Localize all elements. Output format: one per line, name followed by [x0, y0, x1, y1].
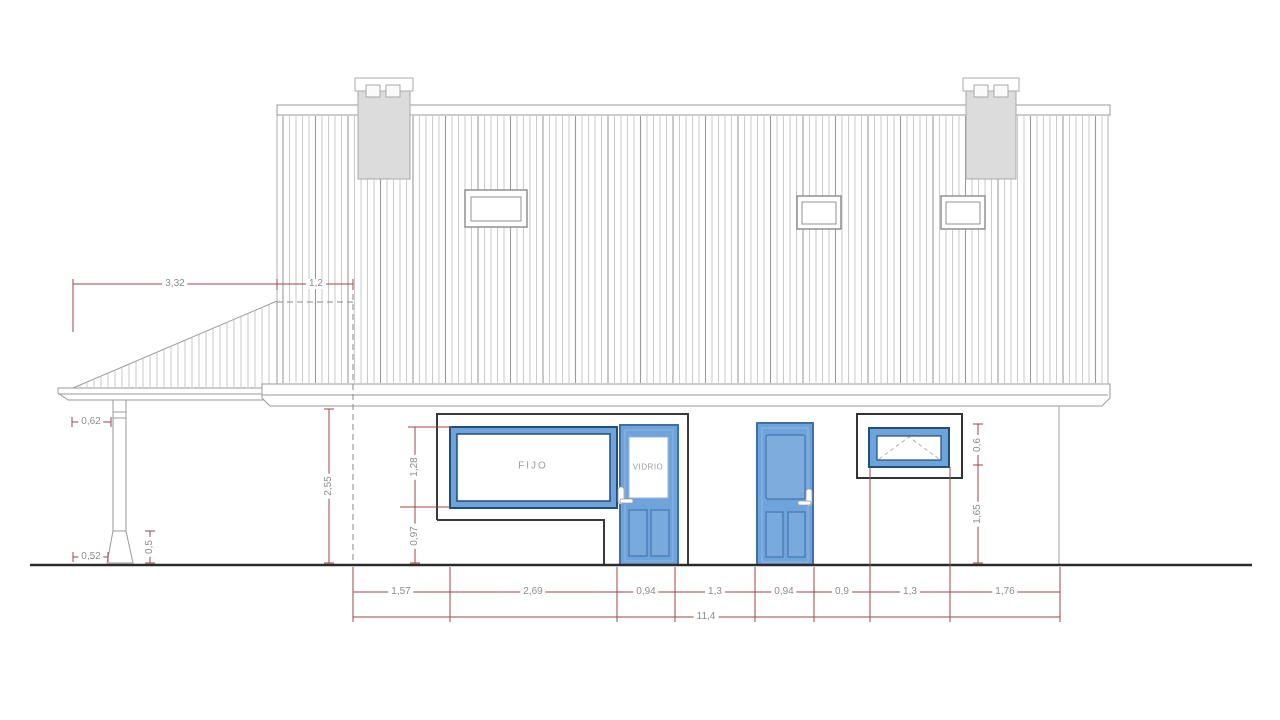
fixed-window-label: FIJO — [518, 461, 548, 472]
dim-bottom-4: 1,3 — [705, 587, 725, 597]
dim-eave-to-post: 0,62 — [78, 417, 103, 427]
chimney-right — [963, 78, 1019, 179]
dim-awning-height: 0,6 — [973, 435, 983, 455]
chimney-right-cap — [963, 78, 1019, 91]
dim-bottom-6: 0,9 — [832, 587, 852, 597]
awning-window — [869, 428, 949, 467]
glazed-door — [618, 425, 678, 565]
door-panel-top — [766, 435, 805, 499]
chimney-left-vent-1 — [366, 85, 380, 97]
elevation-drawing-canvas: FIJO VIDRIO 3,32 1,2 0,62 0,52 0,5 2,55 … — [0, 0, 1280, 720]
dim-post-base-height: 0,5 — [145, 537, 155, 557]
dim-roof-offset: 1,2 — [306, 279, 326, 289]
glazed-door-label: VIDRIO — [633, 463, 664, 472]
dim-awning-sill: 1,65 — [973, 501, 983, 526]
dim-wall-height: 2,55 — [324, 473, 334, 498]
chimney-left — [355, 78, 413, 179]
dim-window-sill: 0,97 — [410, 523, 420, 548]
dim-bottom-5: 0,94 — [771, 587, 796, 597]
door-panel-bottom-right — [788, 512, 805, 557]
dim-bottom-3: 0,94 — [633, 587, 658, 597]
chimney-right-vent-1 — [974, 85, 988, 97]
chimney-left-cap — [355, 78, 413, 91]
elevation-linework — [0, 0, 1280, 720]
roof-window-left — [465, 190, 527, 227]
panel-door — [757, 423, 813, 565]
dim-bottom-7: 1,3 — [900, 587, 920, 597]
roof-window-right — [941, 196, 985, 229]
dim-bottom-1: 1,57 — [388, 587, 413, 597]
door-panel-right — [651, 510, 669, 556]
dim-bottom-8: 1,76 — [992, 587, 1017, 597]
roof-window-middle — [797, 196, 841, 229]
door-panel-left — [629, 510, 647, 556]
dim-window-height: 1,28 — [410, 454, 420, 479]
porch-post-base — [107, 531, 133, 563]
dim-post-base-offset: 0,52 — [78, 552, 103, 562]
dim-leanto-width: 3,32 — [162, 279, 187, 289]
chimney-right-vent-2 — [994, 85, 1008, 97]
leanto-roof — [73, 301, 277, 388]
dim-total-width: 11,4 — [694, 612, 719, 622]
door-panel-bottom-left — [766, 512, 783, 557]
dim-bottom-2: 2,69 — [520, 587, 545, 597]
chimney-left-vent-2 — [386, 85, 400, 97]
